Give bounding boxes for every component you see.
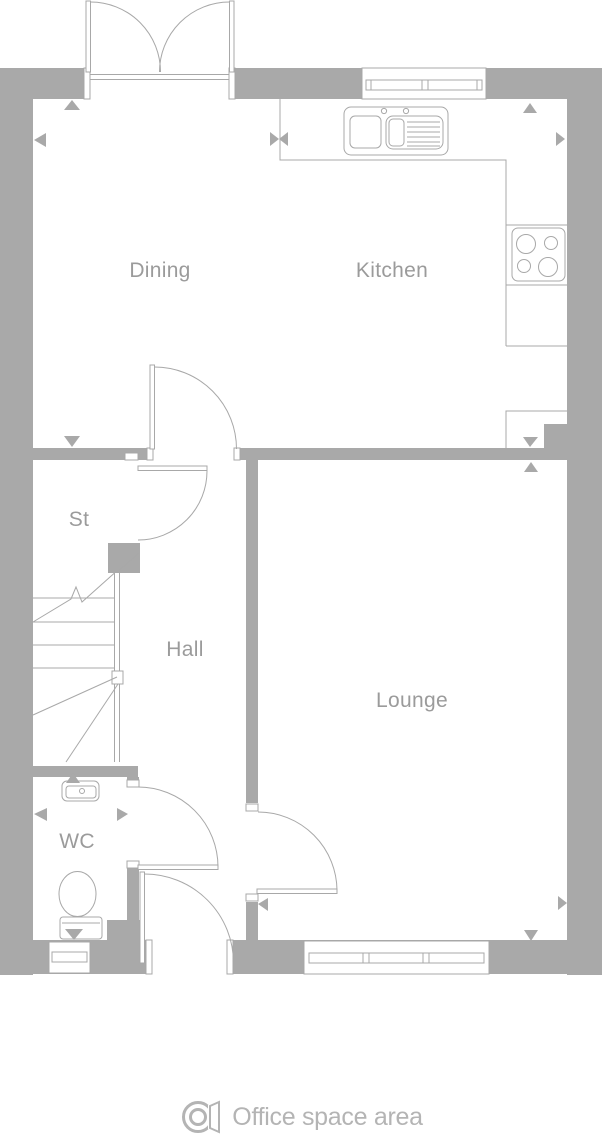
- room-label-kitchen: Kitchen: [356, 259, 428, 283]
- wc-window: [49, 942, 90, 973]
- arrow-up-lounge: [524, 462, 538, 472]
- logo-bracket: [210, 1102, 219, 1132]
- arrow-left-lounge: [258, 898, 268, 911]
- arrow-down-kitchen: [523, 437, 538, 447]
- wc-door: [138, 787, 218, 870]
- lounge-window: [304, 941, 489, 974]
- arrow-left-wc: [34, 808, 47, 821]
- dining-hall-door: [150, 365, 237, 449]
- arrow-up-dining: [64, 100, 80, 110]
- hob: [512, 228, 565, 281]
- room-label-hall: Hall: [166, 638, 203, 662]
- arrow-down-dining: [64, 436, 80, 447]
- toilet: [59, 872, 102, 940]
- stairs: [33, 553, 139, 762]
- office-space-area-logo-icon: [179, 1097, 223, 1137]
- worktop-step-block: [544, 424, 568, 450]
- floor-plan-drawing: [0, 0, 602, 1138]
- store-door: [138, 466, 207, 540]
- kitchen-sink: [344, 107, 448, 155]
- arrow-bowtie-left: [270, 132, 279, 146]
- room-label-store: St: [69, 508, 89, 532]
- room-label-wc: WC: [59, 830, 95, 854]
- basin: [62, 781, 99, 801]
- room-label-dining: Dining: [129, 259, 190, 283]
- floor-plan-page: Dining Kitchen St Hall Lounge WC Office …: [0, 0, 602, 1138]
- lounge-door: [257, 812, 337, 894]
- arrow-down-lounge: [524, 930, 538, 941]
- french-doors: [86, 1, 234, 80]
- dimension-arrows: [34, 100, 567, 941]
- arrow-right-kitchen: [556, 132, 565, 146]
- arrow-right-wc: [117, 808, 128, 821]
- footer-brand-text: Office space area: [232, 1103, 422, 1132]
- arrow-up-kitchen: [523, 103, 537, 113]
- room-label-lounge: Lounge: [376, 689, 448, 713]
- kitchen-window: [362, 68, 486, 99]
- footer-brand: Office space area: [0, 1096, 602, 1138]
- wall-openings: [84, 68, 258, 974]
- arrow-right-lounge: [558, 896, 567, 910]
- arrow-left-dining: [34, 133, 46, 147]
